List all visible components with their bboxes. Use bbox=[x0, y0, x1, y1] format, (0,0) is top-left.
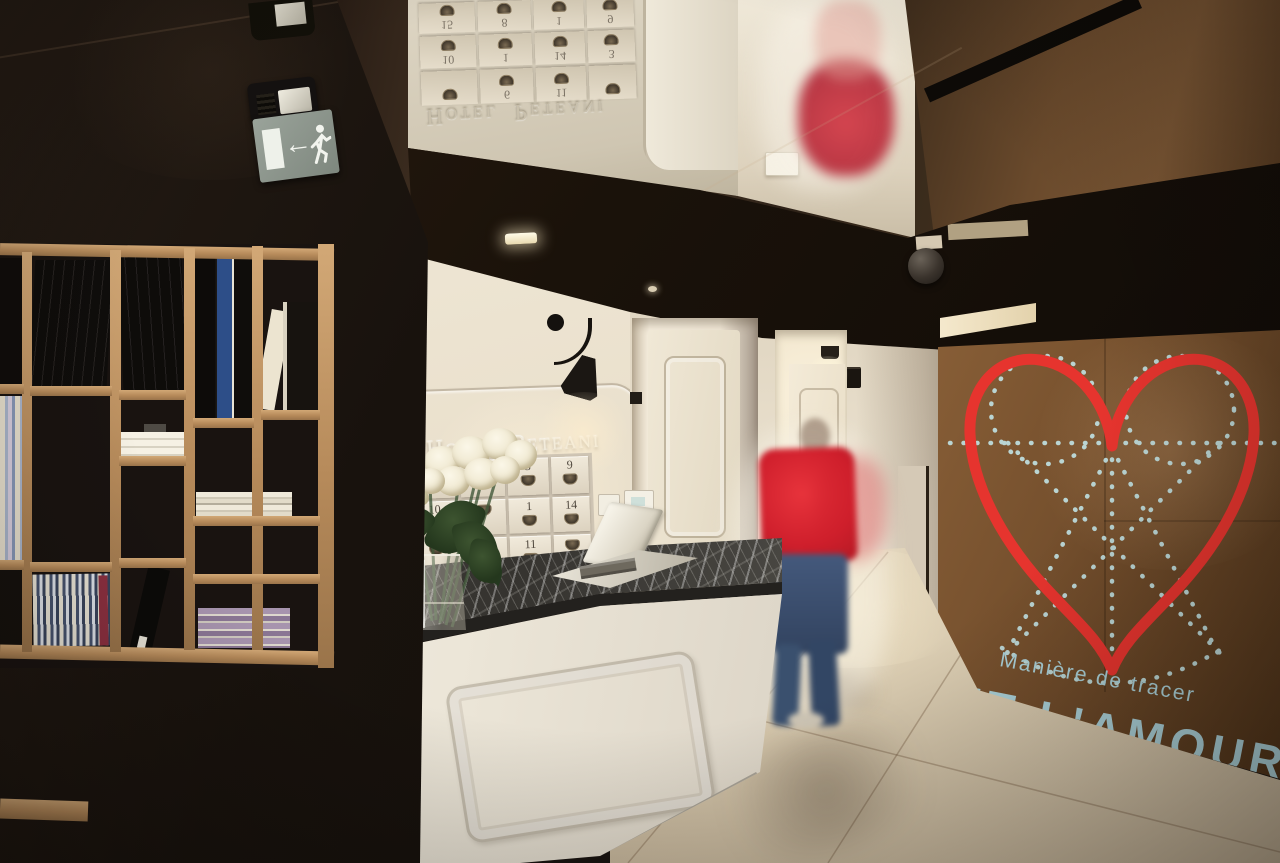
keyhole bbox=[499, 75, 514, 87]
books-dark-col-a-bottom bbox=[0, 570, 22, 648]
wood-ledge bbox=[0, 798, 88, 821]
shelf-right-stile bbox=[318, 244, 334, 668]
books-magazines-1 bbox=[196, 492, 292, 516]
books-magazines-purple bbox=[198, 608, 290, 648]
bookshelf bbox=[0, 244, 334, 668]
key-box: 10 bbox=[419, 35, 476, 69]
books-white-stack bbox=[121, 432, 185, 456]
shelf-stile bbox=[184, 248, 195, 650]
books-patterned-col-a bbox=[0, 396, 22, 560]
person-jeans bbox=[772, 554, 848, 654]
exit-door-symbol bbox=[262, 128, 285, 170]
recessed-light bbox=[505, 232, 538, 245]
shelf-board bbox=[119, 558, 186, 568]
keyhole bbox=[442, 89, 457, 101]
shelf-board bbox=[30, 386, 112, 396]
books-black-col-a bbox=[0, 258, 22, 386]
keyhole bbox=[551, 1, 566, 13]
security-camera bbox=[906, 236, 950, 288]
reflected-emergency-light bbox=[248, 0, 316, 41]
shelf-board bbox=[0, 560, 24, 570]
reflected-cove-strip bbox=[948, 220, 1029, 240]
emergency-light-lens bbox=[278, 87, 313, 115]
running-man-icon bbox=[305, 122, 334, 165]
exit-sign: ← bbox=[252, 109, 340, 183]
key-box: 1 bbox=[533, 0, 584, 30]
shelf-board bbox=[193, 574, 320, 584]
keyhole bbox=[562, 473, 577, 485]
books-cds bbox=[32, 573, 111, 646]
key-box: 9 bbox=[551, 456, 589, 494]
keyhole bbox=[553, 73, 568, 85]
books-black-col-c bbox=[119, 256, 187, 390]
person-shoe bbox=[788, 712, 824, 728]
keyhole bbox=[602, 0, 617, 10]
keyhole bbox=[496, 3, 511, 15]
keyhole bbox=[439, 5, 454, 17]
book-maroon bbox=[98, 575, 108, 645]
book-blue bbox=[217, 255, 234, 418]
laptop bbox=[546, 502, 706, 590]
key-box: 3 bbox=[587, 29, 635, 63]
camera-dome bbox=[908, 248, 944, 284]
book-black-leaning bbox=[128, 566, 170, 659]
shelf-board bbox=[0, 384, 24, 394]
person-shirt-ghost bbox=[816, 456, 886, 560]
shelf-stile bbox=[22, 252, 32, 652]
rose bbox=[490, 456, 520, 484]
keyhole bbox=[440, 40, 455, 52]
shelf-stile bbox=[252, 246, 263, 650]
keyhole bbox=[603, 34, 618, 46]
shelf-board bbox=[261, 410, 320, 420]
key-box: 9 bbox=[586, 0, 634, 28]
lobby-scene: 6 11 10 1 14 3 15 8 1 9 Hotel Peteani bbox=[0, 0, 1280, 863]
shelf-board bbox=[193, 516, 320, 526]
keyhole bbox=[498, 38, 513, 50]
reflected-door-frame bbox=[643, 0, 741, 170]
reflected-key-cabinet-grid: 6 11 10 1 14 3 15 8 1 9 bbox=[418, 0, 641, 106]
key-box: 1 bbox=[478, 33, 532, 67]
key-box: 14 bbox=[534, 31, 585, 65]
key-box bbox=[421, 70, 478, 106]
key-box: 15 bbox=[418, 2, 475, 34]
books-col-d bbox=[195, 255, 252, 418]
stack-ornament bbox=[144, 424, 166, 432]
books-black-col-b bbox=[29, 260, 114, 386]
key-box: 8 bbox=[477, 0, 531, 32]
downlight-dot bbox=[648, 286, 657, 292]
keyhole bbox=[552, 36, 567, 48]
keyhole bbox=[605, 83, 620, 95]
reflected-person bbox=[740, 0, 910, 195]
books-dark-col-e bbox=[283, 302, 322, 410]
shelf-board bbox=[119, 456, 186, 466]
shelf-board bbox=[193, 418, 254, 428]
shelf-board bbox=[30, 562, 112, 572]
shelf-board bbox=[119, 390, 186, 400]
shelf-stile bbox=[110, 250, 121, 652]
